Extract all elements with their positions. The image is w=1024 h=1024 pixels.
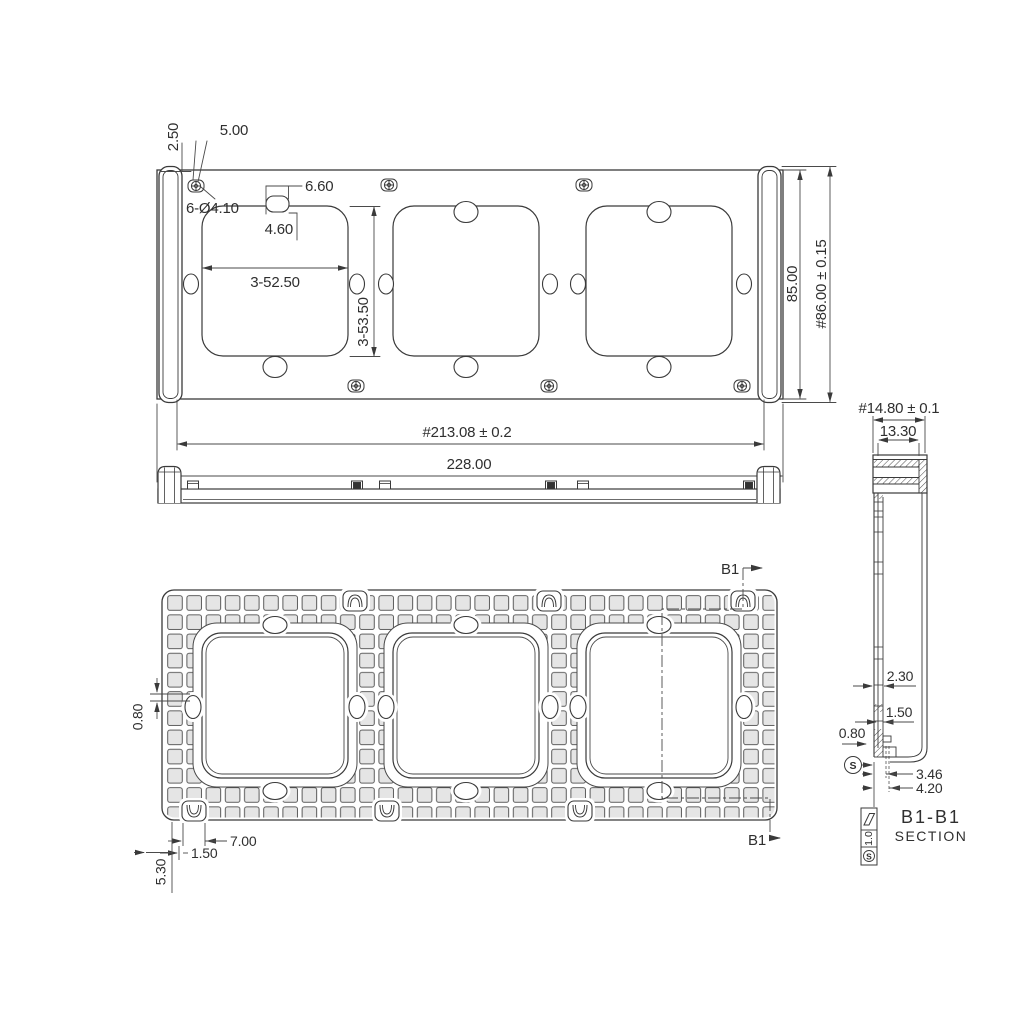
snap-clip bbox=[188, 481, 199, 489]
dim-holes: 6-Ø4.10 bbox=[186, 200, 239, 217]
screw-hole-icon bbox=[734, 380, 750, 392]
cut-label-bottom: B1 bbox=[748, 832, 766, 849]
dim-clip-offset: 1.50 bbox=[191, 845, 218, 861]
finish-value: 1.0 bbox=[863, 831, 875, 846]
screw-hole-icon bbox=[381, 179, 397, 191]
slot-oval bbox=[567, 692, 590, 722]
dim-hook-b: 4.20 bbox=[916, 780, 943, 796]
snap-clip bbox=[744, 481, 755, 489]
module-opening bbox=[393, 633, 539, 778]
slot-oval bbox=[644, 780, 675, 803]
snap-clip bbox=[534, 588, 564, 614]
dim-rib: 0.80 bbox=[130, 703, 146, 730]
dim-slot-height: 4.60 bbox=[265, 221, 293, 238]
screw-hole-icon bbox=[188, 180, 204, 192]
dim-cap-height: #86.00 ± 0.15 bbox=[813, 239, 830, 328]
slot-oval bbox=[182, 692, 205, 722]
dim-edge-offset: 5.30 bbox=[153, 858, 169, 885]
datum-symbol: S bbox=[845, 757, 862, 774]
dim-slot-width: 6.60 bbox=[305, 178, 333, 195]
dim-opening-width: 3-52.50 bbox=[250, 274, 299, 291]
back-view: B1 B1 0.80 7.00 1.50 5.30 bbox=[130, 561, 780, 893]
screw-hole-icon bbox=[348, 380, 364, 392]
screw-hole-icon bbox=[541, 380, 557, 392]
dim-cap-width: #14.80 ± 0.1 bbox=[859, 400, 940, 417]
module-openings-back bbox=[193, 623, 741, 787]
snap-clip bbox=[340, 588, 370, 614]
latch-slot bbox=[266, 196, 289, 212]
dim-cap-inner-width: 13.30 bbox=[880, 423, 917, 440]
snap-clip bbox=[546, 481, 557, 489]
dim-section-rib: 0.80 bbox=[839, 725, 866, 741]
section-subtitle: SECTION bbox=[895, 828, 968, 844]
module-opening bbox=[586, 633, 732, 778]
side-plate-bar bbox=[158, 489, 780, 503]
slot-oval bbox=[539, 692, 562, 722]
slot-oval bbox=[260, 780, 291, 803]
snap-clip bbox=[578, 481, 589, 489]
module-opening bbox=[393, 206, 539, 356]
module-opening bbox=[202, 633, 348, 778]
slot-oval bbox=[644, 614, 675, 637]
snap-clip bbox=[372, 798, 402, 824]
dim-wall-a: 2.30 bbox=[887, 668, 914, 684]
dim-opening-height: 3-53.50 bbox=[355, 297, 372, 346]
technical-drawing: 2.50 5.00 6-Ø4.10 6.60 4.60 3-52.50 3-53… bbox=[0, 0, 1024, 1024]
snap-clip bbox=[179, 798, 209, 824]
finish-symbol: 1.0 S bbox=[861, 808, 877, 865]
section-cap bbox=[873, 455, 927, 493]
section-title: B1-B1 bbox=[901, 807, 961, 827]
slot-oval bbox=[451, 614, 482, 637]
right-end-cap bbox=[758, 167, 781, 403]
snap-clip bbox=[352, 481, 363, 489]
slot-oval bbox=[733, 692, 756, 722]
module-opening bbox=[586, 206, 732, 356]
section-wall bbox=[874, 493, 927, 807]
front-view: 2.50 5.00 6-Ø4.10 6.60 4.60 3-52.50 3-53… bbox=[157, 122, 836, 482]
cut-label-top: B1 bbox=[721, 561, 739, 578]
dim-offset-a: 2.50 bbox=[165, 123, 182, 151]
dim-plate-height: 85.00 bbox=[784, 266, 801, 303]
drawing-canvas: 2.50 5.00 6-Ø4.10 6.60 4.60 3-52.50 3-53… bbox=[0, 0, 1024, 1024]
snap-clip bbox=[380, 481, 391, 489]
dim-total-width: 228.00 bbox=[447, 456, 492, 473]
screw-hole-icon bbox=[576, 179, 592, 191]
dim-offset-b: 5.00 bbox=[220, 122, 248, 139]
snap-clip bbox=[565, 798, 595, 824]
left-end-cap bbox=[159, 167, 182, 403]
slot-oval bbox=[451, 780, 482, 803]
slot-oval bbox=[375, 692, 398, 722]
datum-letter: S bbox=[849, 760, 856, 772]
dim-clip-width: 7.00 bbox=[230, 833, 257, 849]
finish-grade: S bbox=[866, 852, 872, 862]
dim-wall-b: 1.50 bbox=[886, 704, 913, 720]
dim-mount-span: #213.08 ± 0.2 bbox=[422, 424, 511, 441]
slot-oval bbox=[346, 692, 369, 722]
section-view: #14.80 ± 0.1 13.30 2.30 1.50 0.80 3.46 4… bbox=[839, 400, 968, 865]
slot-oval bbox=[260, 614, 291, 637]
